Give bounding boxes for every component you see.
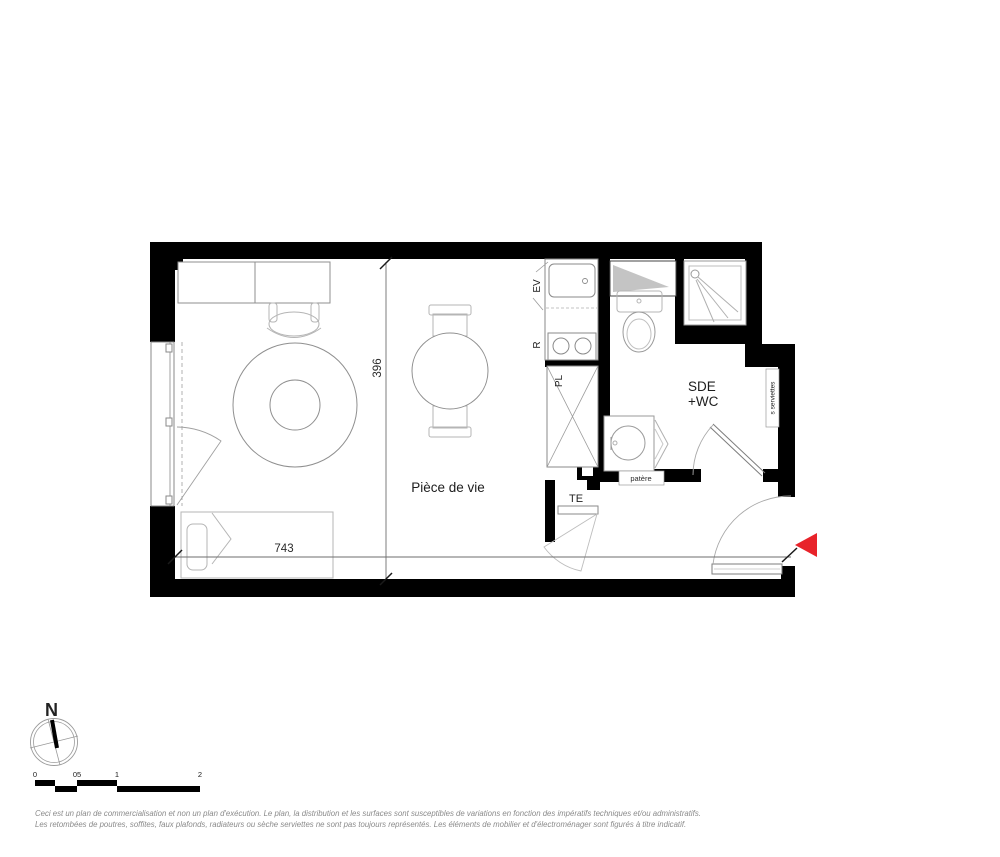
dim-width-label: 743: [274, 543, 293, 555]
wall-top: [150, 242, 762, 259]
wall-entry-jamb: [781, 566, 795, 579]
closet-label: PL: [554, 374, 565, 387]
sleeping-area: [178, 262, 357, 578]
scale-segment-4: [117, 786, 200, 792]
toilet-bowl-outer: [623, 312, 655, 352]
pl-closet: PL: [547, 366, 598, 467]
towel-dryer: s serviettes: [766, 369, 779, 427]
bed: [181, 512, 333, 578]
disclaimer-line-1: Ceci est un plan de commercialisation et…: [35, 809, 701, 818]
french-window: [151, 342, 221, 506]
scale-tick-2: 2: [198, 770, 202, 779]
dining-table: [412, 333, 488, 409]
bathroom-door: [693, 424, 765, 476]
toilet: [617, 291, 662, 352]
floor-plan-canvas: EV R PL TE: [0, 0, 1000, 857]
desk-chair-armrest-left: [269, 303, 277, 322]
window-hinge-top: [166, 344, 172, 352]
towel-fold-outer: [655, 420, 668, 468]
desk-right: [255, 262, 330, 303]
bathroom-door-leaf-1: [713, 424, 765, 473]
window-hinge-bottom: [166, 496, 172, 504]
dining-set: [412, 305, 488, 437]
wall-te-right-stub: [587, 478, 600, 490]
bed-frame: [181, 512, 333, 578]
disclaimer-line-2: Les retombées de poutres, soffites, faux…: [35, 820, 686, 829]
compass-needle: [52, 720, 57, 748]
kitchen: EV R PL TE: [532, 259, 598, 571]
window-swing: [177, 427, 221, 505]
scale-segment-2: [55, 786, 77, 792]
washbasin: [604, 416, 668, 471]
electrical-label: TE: [569, 493, 583, 505]
bathroom-door-swing: [693, 425, 713, 475]
bed-pillow: [187, 524, 207, 570]
coat-hook-label: patère: [630, 474, 651, 483]
scale-tick-1: 1: [115, 770, 119, 779]
kitchen-sink: [549, 264, 595, 297]
te-door-leaf: [558, 506, 598, 514]
wall-te-left-jamb: [545, 480, 555, 542]
bathroom-door-leaf-2: [710, 427, 762, 476]
desk-chair-armrest-right: [311, 303, 319, 322]
wall-bottom: [150, 579, 795, 597]
scale-segment-3: [77, 780, 117, 786]
compass-north-label: N: [45, 700, 58, 720]
wall-bath-door-jamb: [763, 469, 778, 482]
desk-chair: [267, 303, 321, 338]
wall-shower-bottom: [675, 325, 762, 344]
rug-inner: [270, 380, 320, 430]
wall-right-lower: [778, 352, 795, 497]
toilet-button: [637, 299, 641, 303]
fridge-label: R: [532, 341, 543, 348]
dim-height-label: 396: [372, 358, 384, 377]
desk-chair-seat: [269, 312, 319, 336]
coat-hook: patère: [619, 471, 664, 485]
scale-segment-1: [35, 780, 55, 786]
bathroom-label-line2: +WC: [688, 394, 719, 409]
bed-fold: [212, 513, 231, 564]
disclaimer: Ceci est un plan de commercialisation et…: [35, 809, 701, 829]
wall-left-upper: [150, 242, 175, 342]
entrance-door-swing: [713, 496, 791, 564]
scale-tick-05: 05: [73, 770, 81, 779]
floor-plan-page: EV R PL TE: [0, 0, 1000, 857]
scale-bar: 0 05 1 2: [33, 770, 202, 792]
cooktop: [548, 333, 596, 360]
compass: N: [30, 700, 78, 766]
bathroom-label-line1: SDE: [688, 379, 716, 394]
sink-label: EV: [532, 279, 543, 293]
living-room-label: Pièce de vie: [411, 480, 485, 495]
entrance-arrow: [795, 533, 817, 557]
entrance: [712, 496, 817, 574]
ev-leader-bottom: [533, 298, 543, 310]
towel-dryer-label: s serviettes: [770, 381, 777, 415]
shower: [684, 261, 746, 325]
window-hinge-mid: [166, 418, 172, 426]
scale-tick-0: 0: [33, 770, 37, 779]
dim-width-tick-right: [782, 548, 797, 562]
desk-left: [178, 262, 255, 303]
